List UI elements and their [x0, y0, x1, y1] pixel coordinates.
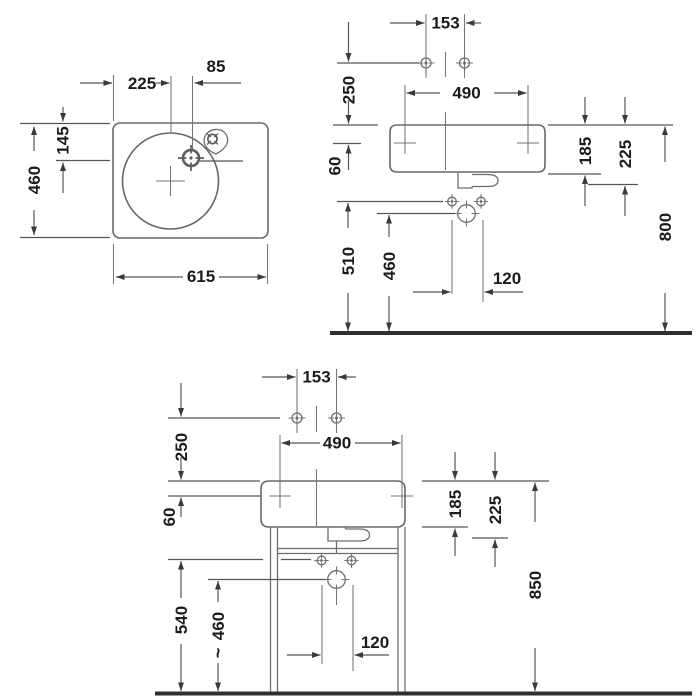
dim-label-console-screws-height: 540 [172, 606, 191, 634]
plan-centerlines [114, 75, 268, 284]
wall-mount-hole-left-icon [418, 55, 435, 72]
dim-label-wall-fixing-span: 490 [452, 84, 480, 103]
dim-label-plan-faucet-depth: 145 [54, 126, 73, 154]
dim-label-console-rim-height: 850 [526, 571, 545, 599]
trap-screw-hole-right-icon [344, 553, 358, 567]
approx-tilde-symbol: ~ [208, 648, 228, 659]
dim-label-wall-body-height: 185 [576, 137, 595, 165]
siphon-trap-outline [458, 172, 498, 188]
basin-rim-outline [113, 123, 268, 238]
accessory-hole-icon [207, 134, 218, 145]
dim-label-wall-fixing-drop: 60 [326, 157, 345, 176]
console-basin-outline [261, 481, 405, 553]
drain-outlet-icon [324, 567, 350, 593]
dimension-drawing-canvas: 615 225 85 460 145 [0, 0, 700, 700]
console-dimension-lines [168, 377, 549, 691]
dim-label-plan-faucet-offset: 85 [207, 57, 226, 76]
siphon-trap-outline [328, 527, 370, 541]
dim-label-console-fixing-span: 490 [323, 434, 351, 453]
drain-outlet-icon [454, 201, 480, 227]
plan-basin-outline [113, 123, 268, 238]
dim-label-console-body-height: 185 [446, 490, 465, 518]
dim-label-console-fixing-drop: 60 [160, 508, 179, 527]
wall-mount-hole-right-icon [456, 55, 473, 72]
wall-mount-hole-right-icon [328, 410, 345, 427]
basin-body-outline [261, 481, 405, 527]
basin-body-outline [390, 125, 545, 172]
dim-label-console-apron-height: 225 [486, 496, 505, 524]
dim-label-wall-screws-height: 510 [339, 247, 358, 275]
dim-label-wall-above-rim: 250 [340, 76, 359, 104]
dim-label-plan-depth: 460 [25, 166, 44, 194]
plan-view: 615 225 85 460 145 [20, 57, 268, 286]
faucet-hole-icon [178, 145, 204, 171]
dim-label-wall-screw-spacing: 120 [493, 269, 521, 288]
trap-screw-hole-right-icon [474, 194, 488, 208]
dim-label-console-drain-height: 460 [209, 612, 228, 640]
wall-elevation-view: 153 490 250 60 185 225 800 510 460 120 [326, 14, 693, 334]
technical-drawing-page: 615 225 85 460 145 [0, 0, 700, 700]
wall-centerlines [394, 14, 539, 302]
console-frame [271, 527, 406, 692]
dim-label-console-screw-spacing: 120 [361, 633, 389, 652]
plan-dimension-lines [20, 83, 266, 277]
dim-label-plan-width: 615 [187, 267, 215, 286]
wall-basin-outline [390, 125, 545, 188]
dim-label-console-above-rim: 250 [172, 433, 191, 461]
console-elevation-view: 153 490 250 60 540 460 ~ 185 225 850 120 [155, 368, 692, 694]
trap-screw-hole-left-icon [445, 194, 459, 208]
trap-screw-hole-left-icon [314, 553, 328, 567]
dim-label-wall-apron-height: 225 [616, 140, 635, 168]
dim-label-wall-drain-height: 460 [380, 252, 399, 280]
dim-label-wall-rim-height: 800 [656, 213, 675, 241]
console-centerlines [269, 369, 413, 671]
wall-mount-hole-left-icon [289, 410, 306, 427]
dim-label-console-hole-spacing: 153 [302, 368, 330, 387]
dim-label-wall-hole-spacing: 153 [431, 14, 459, 33]
dim-label-plan-bowl-offset: 225 [128, 74, 156, 93]
